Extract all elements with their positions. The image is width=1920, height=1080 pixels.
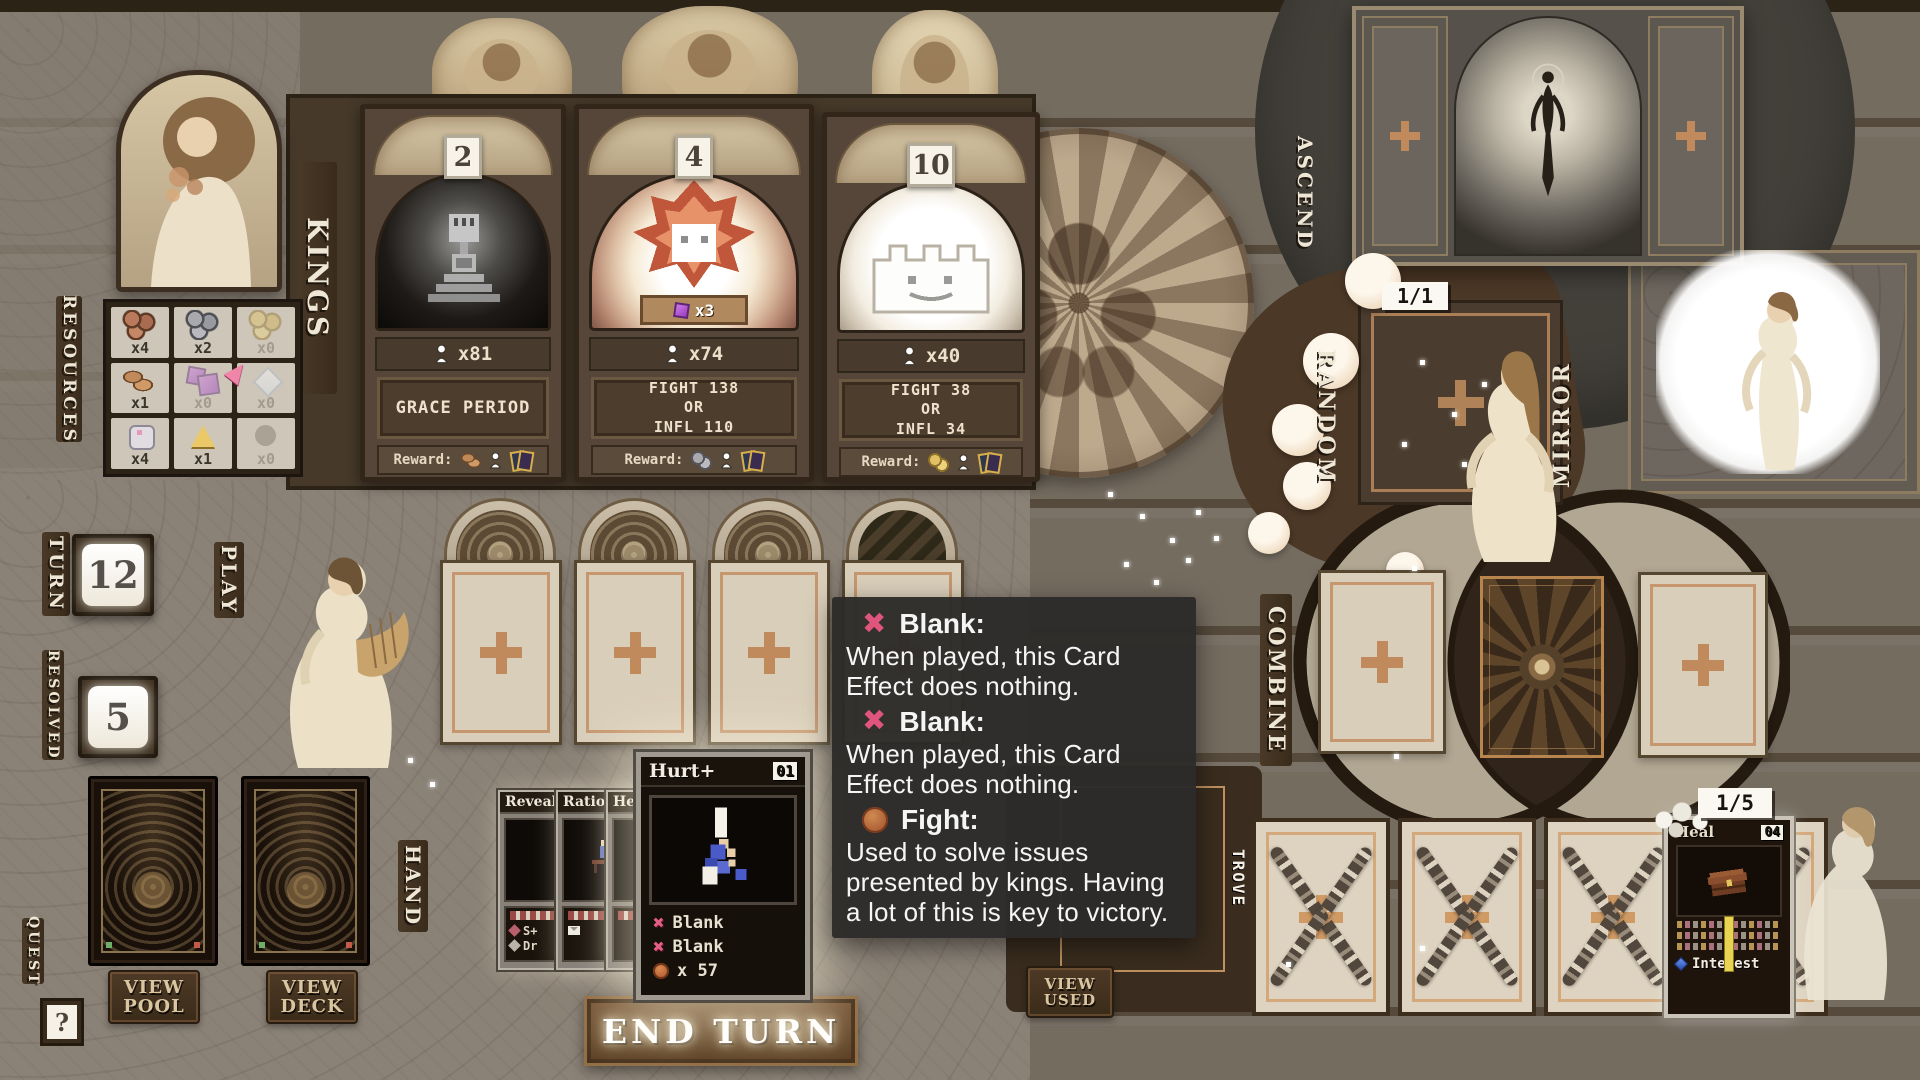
quest-help-button[interactable]: ? bbox=[40, 998, 84, 1046]
effect-highlight-strip bbox=[1724, 916, 1734, 972]
sparkle bbox=[1196, 510, 1201, 515]
sparkle bbox=[1108, 492, 1113, 497]
combine-right-slot[interactable] bbox=[1638, 572, 1768, 758]
king-objective: FIGHT 138 OR INFL 110 bbox=[591, 377, 797, 439]
turn-value: 12 bbox=[82, 544, 144, 606]
fight-icon bbox=[653, 963, 669, 979]
cards-reward-icon bbox=[509, 450, 533, 470]
king-population-value: x40 bbox=[926, 345, 960, 367]
purple-cubes-icon bbox=[182, 366, 224, 396]
card-count-badge: 04 bbox=[1761, 825, 1783, 840]
chains-icon bbox=[1256, 822, 1386, 1012]
random-slot-label: RANDOM bbox=[1310, 336, 1342, 498]
resource-purple-cubes[interactable]: x0 bbox=[174, 363, 232, 414]
button-line: VIEW bbox=[1045, 976, 1096, 992]
ascend-slots-badge: 1/1 bbox=[1382, 282, 1448, 310]
resource-count: x0 bbox=[257, 450, 275, 468]
sparkle bbox=[1412, 566, 1417, 571]
card-art bbox=[1676, 845, 1782, 917]
person-icon bbox=[434, 344, 449, 364]
tooltip-term: Fight: bbox=[901, 804, 979, 836]
sparkle bbox=[1462, 462, 1467, 467]
sparkle bbox=[1154, 580, 1159, 585]
hurt-figure-pixel-art bbox=[681, 802, 765, 898]
quest-label: QUEST bbox=[22, 918, 44, 984]
resource-count: x0 bbox=[257, 394, 275, 412]
person-icon bbox=[720, 452, 733, 469]
resource-count: x1 bbox=[131, 394, 149, 412]
play-slot-3[interactable] bbox=[708, 560, 830, 745]
king-card-3[interactable]: 10 x40 FIGHT 38 OR INFL 34 Reward: bbox=[822, 112, 1040, 482]
gray-orb-icon bbox=[245, 421, 287, 451]
objective-line: OR bbox=[684, 398, 704, 418]
sparkle bbox=[1214, 536, 1219, 541]
button-line: VIEW bbox=[282, 978, 342, 997]
objective-line: GRACE PERIOD bbox=[396, 397, 531, 419]
tooltip-term: Blank: bbox=[899, 608, 985, 640]
view-deck-button[interactable]: VIEW DECK bbox=[266, 970, 358, 1024]
resource-bread[interactable]: x1 bbox=[111, 363, 169, 414]
button-line: VIEW bbox=[124, 978, 184, 997]
resolved-label: RESOLVED bbox=[42, 650, 64, 760]
button-line: USED bbox=[1044, 992, 1096, 1008]
person-icon bbox=[489, 452, 502, 469]
trove-locked-slot-1[interactable] bbox=[1252, 818, 1390, 1016]
king-number-badge: 2 bbox=[444, 135, 482, 179]
reward-label: Reward: bbox=[861, 454, 920, 470]
trove-slots-badge: 1/5 bbox=[1698, 788, 1772, 818]
demand-count: x3 bbox=[695, 301, 714, 320]
resource-count: x4 bbox=[131, 339, 149, 357]
chains-icon bbox=[1548, 822, 1678, 1012]
game-board: KINGS RESOURCES TURN RESOLVED PLAY HAND … bbox=[0, 0, 1920, 1080]
gold-coins-icon bbox=[245, 310, 287, 340]
decor-portrait-card bbox=[116, 70, 282, 292]
trove-locked-slot-3[interactable] bbox=[1544, 818, 1682, 1016]
effect-icon bbox=[508, 939, 521, 952]
king-wall-creature-scene bbox=[837, 181, 1025, 333]
resource-stone[interactable]: x4 bbox=[111, 418, 169, 469]
sparkle bbox=[1140, 514, 1145, 519]
card-title: Hurt+ bbox=[649, 760, 715, 782]
sparkle bbox=[1482, 382, 1487, 387]
resource-count: x2 bbox=[194, 339, 212, 357]
end-turn-button[interactable]: END TURN bbox=[584, 996, 858, 1066]
card-art bbox=[649, 795, 797, 905]
resolved-value: 5 bbox=[88, 686, 148, 748]
king-demand-banner: x3 bbox=[640, 295, 748, 325]
card-effect-list: ✖Blank ✖Blank x 57 bbox=[653, 913, 793, 981]
turn-label: TURN bbox=[42, 532, 70, 616]
objective-line: OR bbox=[921, 400, 941, 420]
random-card-slot[interactable] bbox=[1358, 300, 1563, 505]
gold-coin-reward-icon bbox=[928, 453, 950, 472]
sparkle bbox=[1124, 562, 1129, 567]
button-line: POOL bbox=[123, 997, 185, 1016]
view-used-button[interactable]: VIEW USED bbox=[1026, 966, 1114, 1018]
trove-card-heal[interactable]: Heal 04 Interest bbox=[1664, 816, 1794, 1018]
king-population-row: x74 bbox=[589, 337, 799, 371]
king-population-value: x81 bbox=[458, 343, 492, 365]
fight-icon bbox=[862, 807, 888, 833]
button-line: DECK bbox=[280, 997, 343, 1016]
objective-line: FIGHT 138 bbox=[649, 379, 739, 399]
resources-section-label: RESOURCES bbox=[56, 296, 82, 442]
king-reward-row: Reward: bbox=[591, 445, 797, 475]
combine-left-slot[interactable] bbox=[1318, 570, 1446, 754]
king-population-value: x74 bbox=[689, 343, 723, 365]
person-icon bbox=[665, 344, 680, 364]
person-icon bbox=[902, 346, 917, 366]
tooltip-body: When played, this Card Effect does nothi… bbox=[846, 641, 1182, 702]
tooltip-term: Blank: bbox=[899, 706, 985, 738]
sparkle bbox=[1286, 962, 1291, 967]
sparkle bbox=[1170, 538, 1175, 543]
deck-card-back[interactable] bbox=[241, 776, 370, 966]
resource-gold-coins[interactable]: x0 bbox=[237, 307, 295, 358]
ascend-section-label: ASCEND bbox=[1290, 128, 1320, 258]
effect-label: x 57 bbox=[677, 961, 718, 981]
wall-creature-icon bbox=[856, 230, 1006, 316]
altar-side-panel bbox=[1648, 16, 1734, 256]
king-reward-row: Reward: bbox=[377, 445, 549, 475]
gold-triangle-icon bbox=[182, 421, 224, 451]
combine-section-label: COMBINE bbox=[1260, 594, 1292, 766]
cards-reward-icon bbox=[740, 450, 764, 470]
king-population-row: x81 bbox=[375, 337, 551, 371]
floating-bubble bbox=[1248, 512, 1290, 554]
sparkle bbox=[1452, 412, 1457, 417]
question-mark-icon: ? bbox=[47, 1005, 77, 1039]
objective-line: FIGHT 38 bbox=[891, 381, 971, 401]
card-back-ornament bbox=[254, 789, 357, 953]
person-icon bbox=[957, 454, 970, 471]
silver-coins-icon bbox=[182, 310, 224, 340]
altar-side-panel bbox=[1362, 16, 1448, 256]
sparkle bbox=[408, 758, 413, 763]
silver-coin-reward-icon bbox=[691, 451, 713, 470]
mirror-circle[interactable] bbox=[1656, 250, 1880, 474]
hand-card-hurt-active[interactable]: Hurt+ 01 ✖Blank ✖Blank x 57 bbox=[636, 752, 810, 1000]
card-count-badge: 01 bbox=[773, 762, 797, 780]
effect-text: Dr bbox=[523, 939, 537, 953]
king-number-badge: 10 bbox=[907, 143, 955, 187]
king-card-1[interactable]: 2 x81 GRACE PERIOD Reward: bbox=[360, 104, 566, 482]
sparkle bbox=[430, 782, 435, 787]
white-diamond-icon bbox=[245, 366, 287, 396]
resource-count: x0 bbox=[194, 394, 212, 412]
effect-icon bbox=[508, 924, 521, 937]
chains-icon bbox=[1402, 822, 1532, 1012]
stone-icon bbox=[119, 421, 161, 451]
throne-icon bbox=[417, 212, 509, 324]
reward-label: Reward: bbox=[393, 452, 452, 468]
resource-gray-orb[interactable]: x0 bbox=[237, 418, 295, 469]
resource-count: x4 bbox=[131, 450, 149, 468]
blank-x-icon: ✖ bbox=[653, 938, 664, 957]
king-card-2[interactable]: 4 x3 x74 FIGHT 138 OR INFL 110 Reward: bbox=[574, 104, 814, 482]
mirror-slot-label: MIRROR bbox=[1546, 346, 1578, 504]
play-section-label: PLAY bbox=[214, 542, 244, 618]
purple-cube-icon bbox=[673, 302, 690, 319]
bread-reward-icon bbox=[460, 451, 482, 470]
blank-x-icon: ✖ bbox=[862, 707, 886, 736]
sparkle bbox=[1186, 558, 1191, 563]
blank-x-icon: ✖ bbox=[862, 610, 886, 639]
tooltip-body: When played, this Card Effect does nothi… bbox=[846, 739, 1182, 800]
goddess-statue-icon bbox=[1513, 26, 1583, 236]
trove-section-label: TROVE bbox=[1226, 816, 1251, 940]
turn-counter: 12 bbox=[72, 534, 154, 616]
play-slot-1[interactable] bbox=[440, 560, 562, 745]
resolved-counter: 5 bbox=[78, 676, 158, 758]
king-objective: FIGHT 38 OR INFL 34 bbox=[839, 379, 1023, 441]
sparkle bbox=[1402, 442, 1407, 447]
sparkle bbox=[1420, 360, 1425, 365]
flame-creature-icon bbox=[619, 180, 769, 310]
chest-icon bbox=[1700, 858, 1757, 905]
king-objective: GRACE PERIOD bbox=[377, 377, 549, 439]
cards-reward-icon bbox=[977, 452, 1001, 472]
objective-line: INFL 110 bbox=[654, 418, 734, 438]
ascend-altar-panel[interactable] bbox=[1352, 6, 1744, 266]
resources-panel: x4 x2 x0 x1 x0 x0 x4 x1 x0 bbox=[103, 299, 303, 477]
effect-text: S+ bbox=[523, 924, 537, 938]
king-reward-row: Reward: bbox=[839, 447, 1023, 477]
king-number-badge: 4 bbox=[675, 135, 713, 179]
combine-result-card[interactable] bbox=[1480, 576, 1604, 758]
card-back-ornament bbox=[101, 789, 205, 953]
kings-section-label: KINGS bbox=[298, 162, 337, 394]
blue-diamond-icon bbox=[1674, 957, 1688, 971]
objective-line: INFL 34 bbox=[896, 420, 966, 440]
deck-card-back[interactable] bbox=[88, 776, 218, 966]
bread-icon bbox=[119, 366, 161, 396]
hand-section-label: HAND bbox=[398, 840, 428, 932]
tooltip-body: Used to solve issues presented by kings.… bbox=[846, 837, 1182, 928]
trove-locked-slot-2[interactable] bbox=[1398, 818, 1536, 1016]
blank-x-icon: ✖ bbox=[653, 914, 664, 933]
resource-count: x0 bbox=[257, 339, 275, 357]
view-pool-button[interactable]: VIEW POOL bbox=[108, 970, 200, 1024]
resource-count: x1 bbox=[194, 450, 212, 468]
king-throne-scene bbox=[375, 173, 551, 331]
sparkle bbox=[1394, 754, 1399, 759]
effect-label: Blank bbox=[672, 937, 723, 957]
reward-label: Reward: bbox=[624, 452, 683, 468]
play-slot-2[interactable] bbox=[574, 560, 696, 745]
altar-statue bbox=[1454, 16, 1642, 256]
tooltip: ✖Blank: When played, this Card Effect do… bbox=[832, 597, 1196, 938]
envelope-icon bbox=[568, 926, 580, 935]
effect-label: Blank bbox=[672, 913, 723, 933]
sparkle bbox=[1420, 946, 1425, 951]
resource-silver-coins[interactable]: x2 bbox=[174, 307, 232, 358]
copper-coins-icon bbox=[119, 310, 161, 340]
resource-copper-coins[interactable]: x4 bbox=[111, 307, 169, 358]
muse-portrait-art bbox=[121, 75, 277, 287]
card-title: Heal bbox=[1675, 823, 1714, 841]
resource-gold-triangle[interactable]: x1 bbox=[174, 418, 232, 469]
king-population-row: x40 bbox=[837, 339, 1025, 373]
